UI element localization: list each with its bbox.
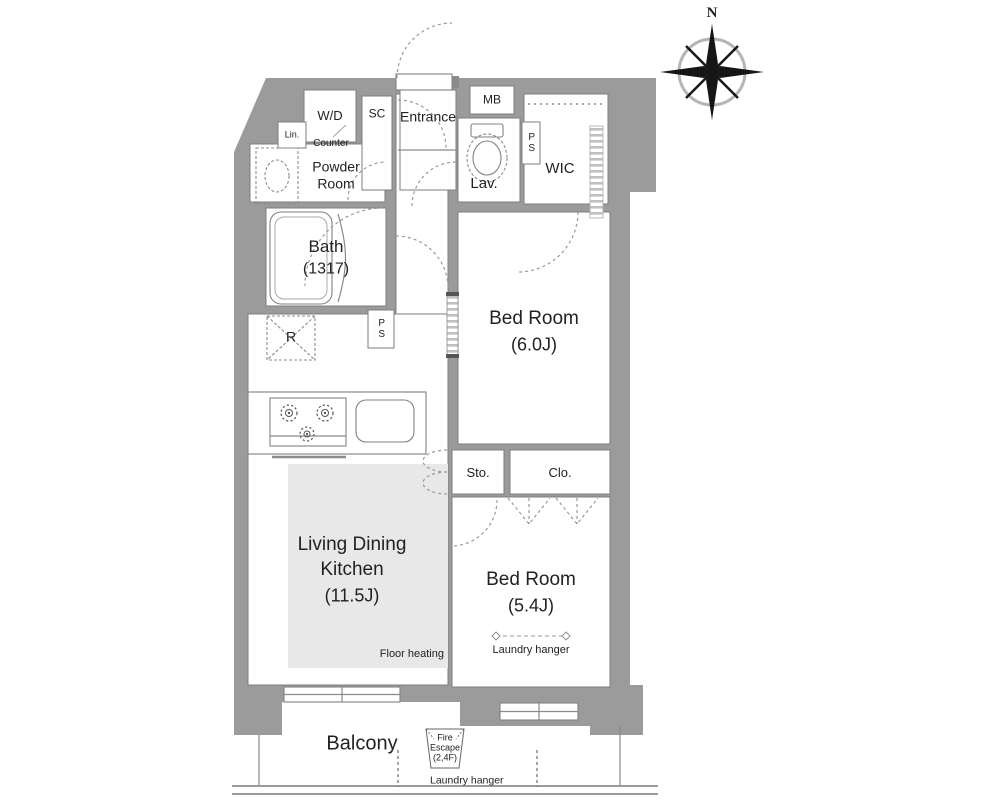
- label-bath-name: Bath: [309, 238, 344, 256]
- label-bath-size: (1317): [303, 262, 349, 279]
- label-refrigerator: R: [286, 330, 296, 345]
- label-fire-escape-line3: (2,4F): [433, 753, 457, 762]
- label-lin: Lin.: [285, 130, 300, 139]
- label-bedroom2-size: (5.4J): [508, 597, 554, 616]
- label-mb: MB: [483, 94, 501, 107]
- label-wic: WIC: [545, 161, 574, 177]
- label-counter: Counter: [313, 139, 349, 150]
- label-sc: SC: [369, 108, 386, 121]
- floorplan: W/D SC Entrance MB Lin. Counter Powder R…: [0, 0, 999, 801]
- label-lav: Lav.: [470, 176, 497, 192]
- bathtub-icon: [270, 212, 332, 304]
- bedroom2-window: [500, 703, 578, 720]
- compass-icon: [660, 24, 764, 120]
- wic-hanger-pipe: [590, 126, 603, 218]
- sliding-door: [446, 292, 459, 358]
- label-bedroom2-laundry: Laundry hanger: [492, 645, 569, 657]
- label-clo: Clo.: [548, 466, 571, 480]
- label-balcony-laundry: Laundry hanger: [430, 775, 504, 786]
- label-entrance: Entrance: [400, 110, 456, 125]
- label-balcony: Balcony: [326, 734, 397, 755]
- label-bedroom2-name: Bed Room: [486, 570, 576, 590]
- label-ldk-size: (11.5J): [325, 587, 380, 606]
- label-wd: W/D: [317, 109, 342, 123]
- stove-icon: [270, 398, 346, 446]
- label-bedroom1-name: Bed Room: [489, 309, 579, 329]
- label-ps-upper: PS: [526, 132, 537, 154]
- label-ldk-line1: Living Dining: [298, 535, 407, 555]
- front-door: [396, 74, 452, 90]
- label-ps-lower: PS: [376, 318, 387, 340]
- floorplan-graphics: [0, 0, 999, 801]
- label-powder-room-line2: Room: [317, 177, 354, 192]
- label-floor-heating: Floor heating: [380, 649, 444, 661]
- room-floor-bedroom2: [452, 497, 610, 687]
- label-sto: Sto.: [466, 466, 489, 480]
- label-compass-north: N: [707, 6, 718, 22]
- label-ldk-line2: Kitchen: [320, 560, 383, 580]
- label-bedroom1-size: (6.0J): [511, 336, 557, 355]
- ldk-window: [284, 687, 400, 702]
- sink-icon: [356, 400, 414, 442]
- toilet-icon: [471, 124, 503, 137]
- label-powder-room-line1: Powder: [312, 160, 359, 175]
- room-floor-entrance: [400, 90, 456, 190]
